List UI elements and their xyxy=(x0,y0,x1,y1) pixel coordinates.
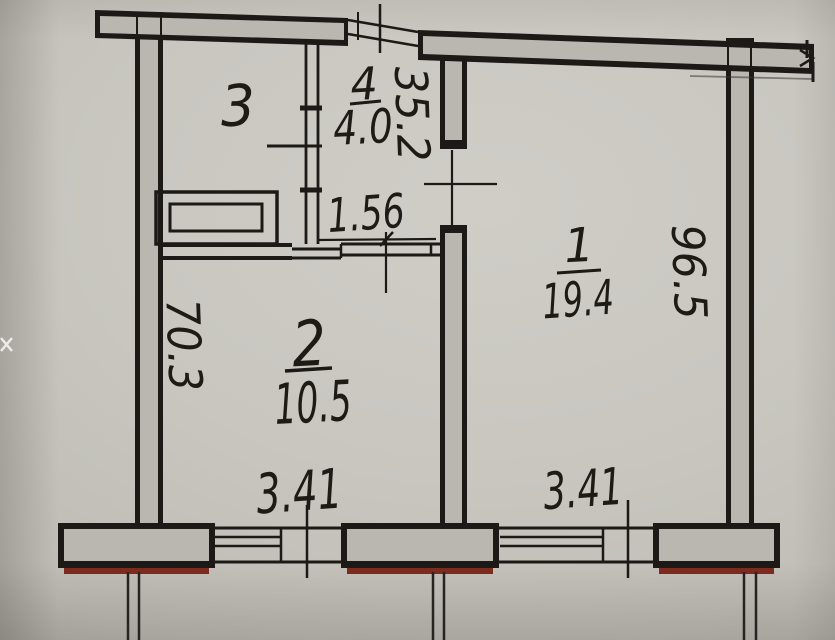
floor-plan-photo: 3 4 4.0 35.2 1.56 1 19.4 96.5 2 10.5 70.… xyxy=(0,0,835,640)
room-2-area-label: 10.5 xyxy=(273,374,353,434)
room-1-area-label: 19.4 xyxy=(541,274,616,327)
dim-window-left-label: 3.41 xyxy=(254,462,343,523)
room-3-number-label: 3 xyxy=(220,78,256,136)
balcony-door-opening xyxy=(348,4,418,53)
dim-room1-depth-label: 96.5 xyxy=(665,224,713,321)
room-1-number-label: 1 xyxy=(563,222,595,271)
x-artifact-mark xyxy=(1,338,12,351)
dim-room4-width-label: 1.56 xyxy=(326,188,407,240)
balcony-lines xyxy=(128,572,756,640)
room2-top-wall xyxy=(162,244,442,258)
window-piers xyxy=(58,523,780,574)
room-2-number-label: 2 xyxy=(290,312,327,377)
window-sill-left xyxy=(64,568,209,574)
window-sill-center xyxy=(347,568,493,574)
dim-room4-depth-label: 35.2 xyxy=(388,66,436,163)
dim-window-right-label: 3.41 xyxy=(542,462,625,518)
bathtub-fixture xyxy=(156,192,277,244)
dim-room2-depth-label: 70.3 xyxy=(159,298,208,392)
